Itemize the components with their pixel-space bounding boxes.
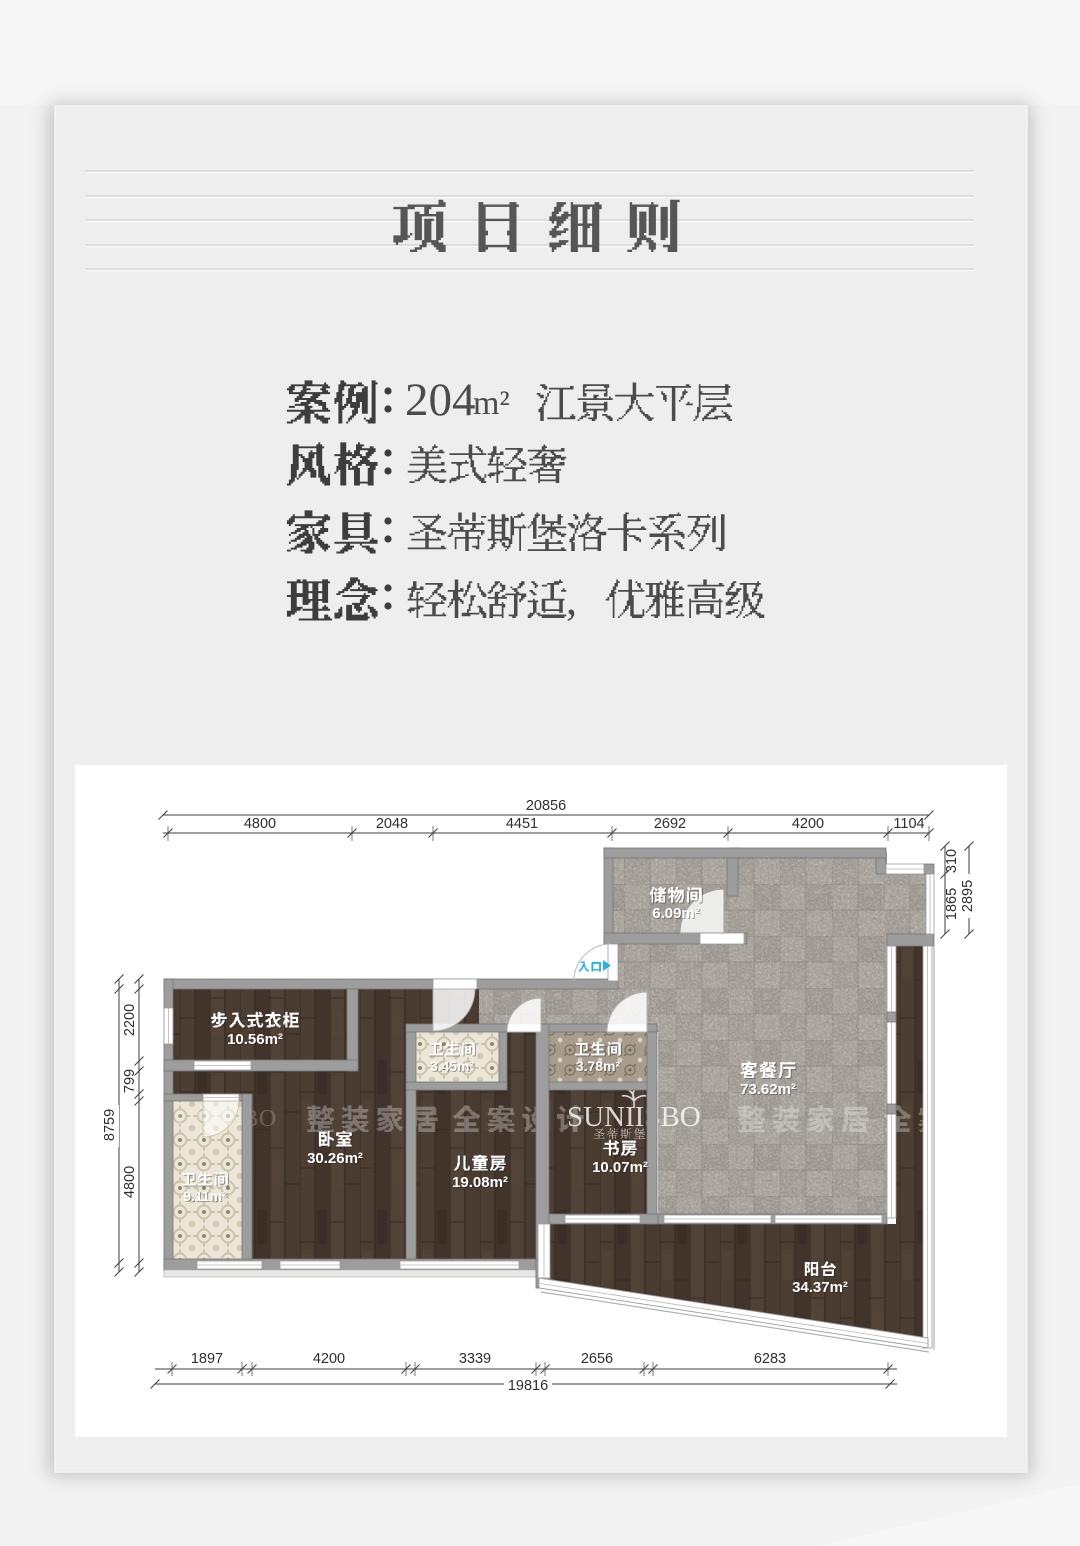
svg-text:,: , [566, 575, 577, 624]
svg-text:8759: 8759 [102, 1109, 118, 1141]
svg-text:4200: 4200 [792, 816, 824, 832]
svg-text:3.78m²: 3.78m² [576, 1058, 621, 1074]
svg-text:2200: 2200 [122, 1004, 138, 1036]
svg-text:2048: 2048 [376, 816, 408, 832]
svg-text:30.26m²: 30.26m² [307, 1150, 363, 1167]
svg-text:m²: m² [473, 385, 510, 422]
svg-text:1897: 1897 [191, 1351, 223, 1367]
svg-text:310: 310 [944, 849, 960, 873]
svg-text:9.11m²: 9.11m² [183, 1188, 227, 1204]
svg-text:799: 799 [122, 1069, 138, 1093]
svg-text:4451: 4451 [506, 816, 538, 832]
svg-text:4200: 4200 [313, 1351, 345, 1367]
svg-text:10.56m²: 10.56m² [227, 1031, 283, 1048]
svg-text:2656: 2656 [581, 1351, 613, 1367]
svg-text:4800: 4800 [122, 1166, 138, 1198]
svg-text:2692: 2692 [654, 816, 686, 832]
svg-text:204: 204 [405, 374, 476, 426]
svg-text:1104: 1104 [893, 816, 924, 832]
svg-text:3339: 3339 [459, 1351, 491, 1367]
svg-text:73.62m²: 73.62m² [740, 1081, 796, 1098]
svg-text:3.45m²: 3.45m² [430, 1058, 475, 1074]
svg-text:4800: 4800 [244, 816, 276, 832]
svg-text:2895: 2895 [960, 880, 976, 912]
svg-text:6283: 6283 [754, 1351, 786, 1367]
svg-text:19816: 19816 [508, 1378, 548, 1394]
svg-text:1865: 1865 [944, 888, 960, 920]
svg-text:10.07m²: 10.07m² [592, 1159, 648, 1176]
svg-text:19.08m²: 19.08m² [452, 1174, 508, 1191]
svg-text:20856: 20856 [526, 798, 566, 814]
svg-text:6.09m²: 6.09m² [652, 905, 700, 922]
svg-text:34.37m²: 34.37m² [792, 1279, 848, 1296]
